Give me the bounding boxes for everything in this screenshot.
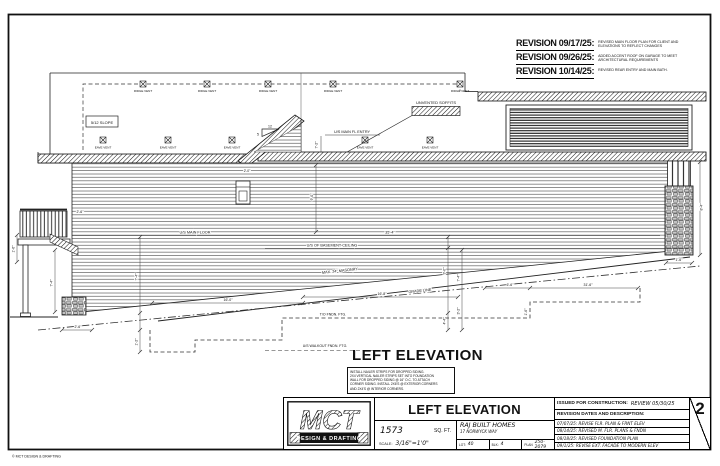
lot-label: LOT: (459, 443, 466, 447)
slope-label-box: 5/12 SLOPE (86, 116, 118, 127)
revision-entry: 08/18/25: REVISED FOUNDATION PLAN (555, 435, 689, 443)
svg-text:EAVE VENT: EAVE VENT (422, 146, 439, 150)
svg-text:U/S OF BASEMENT CEILING: U/S OF BASEMENT CEILING (307, 244, 358, 248)
area-value: 1573 (380, 426, 403, 436)
issued-label: ISSUED FOR CONSTRUCTION: (557, 401, 628, 406)
revision-entry: 08/14/25: REVISED M. FLR. PLANS & FNDN (555, 428, 689, 436)
svg-text:RIDGE VENT: RIDGE VENT (134, 89, 153, 93)
blk-value: 4 (501, 442, 504, 447)
svg-text:35'-4": 35'-4" (385, 231, 395, 235)
plan-label: PLAN (524, 443, 532, 447)
client-address: 17 NORWYCK WAY (457, 429, 554, 434)
svg-text:1'-6": 1'-6" (524, 308, 528, 316)
revision-description-line: ARCHITECTURAL REQUIREMENTS (598, 58, 684, 63)
mct-logo: MCT DESIGN & DRAFTING (287, 401, 371, 446)
stone-base-box (62, 297, 86, 315)
blk-label: BLK: (492, 443, 499, 447)
svg-text:7'-4": 7'-4" (135, 273, 139, 281)
garage-slat-band (506, 105, 692, 150)
revision-title: REVISION 09/26/25: (516, 53, 594, 65)
svg-text:9'-0": 9'-0" (443, 267, 447, 275)
svg-text:EAVE VENT: EAVE VENT (95, 146, 112, 150)
siding-wall (72, 163, 690, 313)
title-block: MCT DESIGN & DRAFTING LEFT ELEVATION 157… (283, 397, 711, 450)
revision-entry: 07/07/25: REVISE FLR. PLAN & FRNT ELEV (555, 420, 689, 428)
svg-text:T/O FNDN. FTG.: T/O FNDN. FTG. (320, 313, 346, 317)
lot-row: LOT: 40 BLK: 4 PLAN 250-2079 (457, 439, 554, 449)
svg-text:7'-2": 7'-2" (315, 141, 319, 149)
svg-text:31'-6": 31'-6" (584, 283, 594, 287)
svg-text:U/S MAIN FL ENTRY: U/S MAIN FL ENTRY (334, 130, 371, 134)
issued-revisions-cell: ISSUED FOR CONSTRUCTION: REVIEW 05/30/25… (554, 398, 689, 449)
scale-value: 3/16"=1'0" (396, 440, 429, 447)
plan-cell: PLAN 250-2079 (521, 440, 554, 449)
client-cell: RAJ BUILT HOMES 17 NORWYCK WAY LOT: 40 B… (457, 421, 554, 449)
svg-text:2'-0": 2'-0" (244, 169, 251, 173)
lot-cell: LOT: 40 (457, 440, 489, 449)
drawing-title: LEFT ELEVATION (375, 398, 554, 421)
plan-value: 250-2079 (535, 440, 554, 450)
svg-text:1'-2": 1'-2" (135, 338, 139, 346)
svg-text:RIDGE VENT: RIDGE VENT (324, 89, 343, 93)
svg-text:5: 5 (257, 133, 259, 137)
svg-text:3'-2": 3'-2" (457, 307, 461, 315)
revision-description: REVISED MAIN FLOOR PLAN FOR CLIENT AND E… (598, 39, 684, 49)
revision-note-row: REVISION 09/17/25: REVISED MAIN FLOOR PL… (516, 39, 706, 51)
window (236, 181, 250, 204)
blk-cell: BLK: 4 (489, 440, 522, 449)
svg-text:5/12 SLOPE: 5/12 SLOPE (91, 120, 114, 125)
scale-label: SCALE: (379, 442, 393, 446)
svg-text:2'-6": 2'-6" (77, 210, 85, 214)
sheet-number: 2 (690, 399, 710, 419)
revision-description-line: REVISED REAR ENTRY AND MAIN BATH. (598, 68, 684, 73)
svg-text:1'-6": 1'-6" (676, 258, 684, 262)
drawing-sheet: © MCT DESIGN & DRAFTING RIDGE VENT RIDGE… (0, 0, 720, 466)
revision-notes: REVISION 09/17/25: REVISED MAIN FLOOR PL… (516, 39, 706, 81)
title-cell: LEFT ELEVATION 1573 SQ. FT. SCALE: 3/16"… (374, 398, 554, 449)
svg-text:6'-6": 6'-6" (507, 283, 515, 287)
revision-entry: 09/1/25: REVISE EXT. FACADE TO MODERN EL… (555, 443, 689, 450)
elevation-heading: LEFT ELEVATION (352, 347, 483, 364)
sheet-number-cell: 2 (689, 398, 710, 449)
nailer-note-box: INSTALL NAILER STRIPS FOR DROPPED SIDING… (347, 367, 455, 394)
svg-text:9'-0": 9'-0" (310, 193, 314, 201)
svg-text:12: 12 (268, 125, 272, 129)
svg-text:8'-4": 8'-4" (700, 203, 704, 211)
svg-text:EAVE VENT: EAVE VENT (357, 146, 374, 150)
revision-description: REVISED REAR ENTRY AND MAIN BATH. (598, 67, 684, 72)
issued-value: REVIEW 05/30/25 (631, 401, 675, 407)
revision-header: REVISION DATES AND DESCRIPTION: (555, 410, 689, 420)
svg-text:4'-4": 4'-4" (443, 317, 447, 325)
ridge-vent-labels: RIDGE VENT RIDGE VENT RIDGE VENT RIDGE V… (134, 89, 470, 93)
logo-cell: MCT DESIGN & DRAFTING (284, 398, 374, 449)
logo-subtitle: DESIGN & DRAFTING (296, 436, 361, 442)
svg-text:1'-6": 1'-6" (12, 245, 16, 253)
lot-value: 40 (468, 442, 474, 447)
area-scale-cell: 1573 SQ. FT. SCALE: 3/16"=1'0" (375, 421, 457, 449)
svg-text:UNVENTED SOFFITS: UNVENTED SOFFITS (416, 100, 456, 105)
area-unit: SQ. FT. (434, 428, 451, 434)
revision-title: REVISION 10/14/25: (516, 67, 594, 79)
svg-text:16'-0": 16'-0" (224, 298, 234, 302)
revision-description: ADDED ACCENT ROOF ON GARAGE TO MEET ARCH… (598, 53, 684, 63)
note-line: AND 2x4's @ INTERIOR CORNERS. (350, 387, 452, 391)
revision-note-row: REVISION 09/26/25: ADDED ACCENT ROOF ON … (516, 53, 706, 65)
svg-text:RIDGE VENT: RIDGE VENT (198, 89, 217, 93)
revision-note-row: REVISION 10/14/25: REVISED REAR ENTRY AN… (516, 67, 706, 79)
svg-text:RIDGE VENT: RIDGE VENT (451, 89, 470, 93)
svg-text:2'-6": 2'-6" (75, 325, 83, 329)
revision-description-line: ELEVATIONS TO REFLECT CHANGES (598, 44, 684, 49)
svg-text:7'-4": 7'-4" (50, 279, 54, 287)
svg-text:U/S WALKOUT FNDN. FTG.: U/S WALKOUT FNDN. FTG. (303, 344, 348, 348)
svg-text:EAVE VENT: EAVE VENT (224, 146, 241, 150)
svg-text:7'-4": 7'-4" (457, 274, 461, 282)
svg-text:16'-8": 16'-8" (378, 292, 388, 296)
svg-text:RIDGE VENT: RIDGE VENT (259, 89, 278, 93)
svg-text:EAVE VENT: EAVE VENT (160, 146, 177, 150)
client-name: RAJ BUILT HOMES (457, 421, 554, 429)
copyright-watermark: © MCT DESIGN & DRAFTING (12, 455, 61, 459)
logo-text: MCT (300, 405, 361, 435)
svg-text:U/S MAIN FLOOR: U/S MAIN FLOOR (179, 231, 210, 235)
revision-list: 07/07/25: REVISE FLR. PLAN & FRNT ELEV 0… (555, 420, 689, 449)
revision-title: REVISION 09/17/25: (516, 39, 594, 51)
